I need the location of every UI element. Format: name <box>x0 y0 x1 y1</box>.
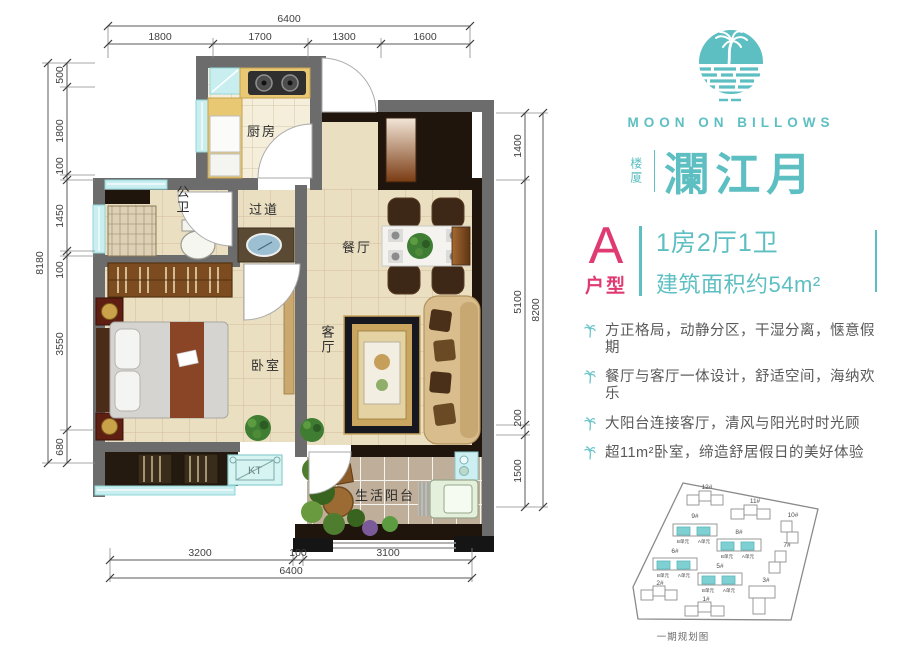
dim-right-2: 200 <box>512 409 524 427</box>
dim-left-0: 500 <box>54 66 66 84</box>
bed-runner <box>170 322 204 418</box>
brand-name-en: MOON ON BILLOWS <box>628 115 835 130</box>
siteplan-building: 11# <box>731 498 770 519</box>
dim-bottom-total: 6400 <box>279 565 303 577</box>
dim-left-6: 680 <box>54 438 66 456</box>
brand-name-row: 楼厦 瀾江月 <box>628 138 835 203</box>
siteplan-building-highlight: 5# B单元 A单元 <box>698 563 742 594</box>
label-kitchen: 厨房 <box>247 124 277 140</box>
siteplan-building: 7# <box>769 542 791 573</box>
sideboard <box>452 227 470 265</box>
siteplan-building-highlight: 8# B单元 A单元 <box>717 529 761 560</box>
svg-text:B单元: B单元 <box>657 572 670 579</box>
siteplan: 12# 11# 10# 9# B单元 A单元 <box>603 477 859 650</box>
dim-bottom-2: 3100 <box>376 547 400 559</box>
svg-text:8#: 8# <box>735 529 743 536</box>
dim-top-0: 1800 <box>148 31 172 43</box>
palm-bullet-icon <box>583 446 597 460</box>
siteplan-building: 12# <box>687 484 723 505</box>
unit-area: 建筑面积约54m² <box>656 267 821 299</box>
siteplan-boundary <box>633 483 818 620</box>
label-hallway: 过道 <box>249 203 279 218</box>
pillow <box>115 329 140 369</box>
dim-right-1: 5100 <box>512 290 524 314</box>
svg-text:3#: 3# <box>762 577 770 584</box>
entry-cabinet <box>386 118 416 182</box>
dim-right-total: 8200 <box>530 298 542 322</box>
dim-left-1: 1800 <box>54 119 66 143</box>
dim-top-total: 6400 <box>277 13 301 25</box>
shower <box>108 206 156 256</box>
dim-bottom-1: 100 <box>289 547 307 559</box>
dim-bottom-0: 3200 <box>188 547 212 559</box>
feature-item: 方正格局，动静分区，干湿分离，惬意假期 <box>583 323 879 356</box>
dim-left-4: 100 <box>54 261 66 279</box>
palm-bullet-icon <box>583 417 597 431</box>
svg-text:A单元: A单元 <box>742 553 755 560</box>
dim-right-0: 1400 <box>512 134 524 158</box>
brand-name-cn: 瀾江月 <box>664 138 817 203</box>
siteplan-building: 2# <box>641 580 677 600</box>
siteplan-caption: 一期规划图 <box>657 631 710 643</box>
dim-left-5: 3550 <box>54 332 66 356</box>
brand-logo-icon <box>695 28 767 106</box>
svg-text:10#: 10# <box>788 512 799 519</box>
unit-type-label: 户型 <box>585 271 627 298</box>
unit-divider <box>639 226 642 296</box>
dim-top-3: 1600 <box>413 31 437 43</box>
siteplan-building: 10# <box>781 512 799 543</box>
label-balcony: 生活阳台 <box>355 489 415 504</box>
feature-item: 餐厅与客厅一体设计，舒适空间，海纳欢乐 <box>583 369 879 402</box>
svg-text:9#: 9# <box>691 513 699 520</box>
unit-end-divider <box>875 230 877 292</box>
feature-text: 超11m²卧室，缔造舒居假日的美好体验 <box>605 445 864 462</box>
svg-text:12#: 12# <box>702 484 713 491</box>
label-living: 客厅 <box>319 324 335 355</box>
siteplan-building-highlight: 6# B单元 A单元 <box>653 548 697 579</box>
unit-summary: A 户型 1房2厅1卫 建筑面积约54m² <box>585 223 877 299</box>
feature-list: 方正格局，动静分区，干湿分离，惬意假期 餐厅与客厅一体设计，舒适空间，海纳欢乐 … <box>583 323 879 475</box>
brand-prefix: 楼厦 <box>628 157 645 185</box>
palm-bullet-icon <box>583 370 597 384</box>
label-bath: 公卫 <box>174 185 190 215</box>
label-bedroom: 卧室 <box>251 358 281 374</box>
feature-text: 餐厅与客厅一体设计，舒适空间，海纳欢乐 <box>605 369 879 402</box>
svg-text:A单元: A单元 <box>723 587 736 594</box>
dim-right-3: 1500 <box>512 459 524 483</box>
svg-text:11#: 11# <box>750 498 761 505</box>
coffee-table <box>364 342 400 404</box>
siteplan-building: 3# <box>749 577 775 614</box>
pillow <box>115 371 140 411</box>
siteplan-building-highlight: 9# B单元 A单元 <box>673 513 717 545</box>
svg-text:B单元: B单元 <box>677 538 690 545</box>
svg-text:B单元: B单元 <box>721 553 734 560</box>
feature-item: 大阳台连接客厅，清风与阳光时时光顾 <box>583 416 879 433</box>
dim-top-1: 1700 <box>248 31 272 43</box>
svg-text:A单元: A单元 <box>698 538 711 545</box>
tv-cabinet <box>284 290 294 394</box>
hallway-basin <box>238 228 294 262</box>
feature-text: 方正格局，动静分区，干湿分离，惬意假期 <box>605 323 879 356</box>
palm-bullet-icon <box>583 324 597 338</box>
feature-item: 超11m²卧室，缔造舒居假日的美好体验 <box>583 445 879 462</box>
svg-text:A单元: A单元 <box>678 572 691 579</box>
siteplan-building: 1# <box>685 596 724 616</box>
unit-type-block: A 户型 <box>585 224 627 298</box>
dim-left-total: 8180 <box>34 251 46 275</box>
bed-headboard <box>96 328 110 412</box>
dim-left-3: 1450 <box>54 204 66 228</box>
floorplan: KT 厨房 公卫 过道 餐厅 卧室 客厅 生活阳台 6400 1800 1700… <box>0 0 600 600</box>
svg-text:7#: 7# <box>783 542 791 549</box>
entry-door <box>322 58 376 112</box>
fridge <box>210 116 240 152</box>
svg-text:5#: 5# <box>716 563 724 570</box>
ac-platform: KT <box>228 455 282 485</box>
dim-left-2: 100 <box>54 157 66 175</box>
unit-specs: 1房2厅1卫 建筑面积约54m² <box>656 223 821 299</box>
marketing-panel: MOON ON BILLOWS 楼厦 瀾江月 A 户型 1房2厅1卫 建筑面积约… <box>575 28 887 650</box>
svg-text:B单元: B单元 <box>702 587 715 594</box>
feature-text: 大阳台连接客厅，清风与阳光时时光顾 <box>605 416 860 433</box>
balcony-sink <box>455 452 478 480</box>
dim-top-2: 1300 <box>332 31 356 43</box>
label-dining: 餐厅 <box>342 240 372 256</box>
unit-layout: 1房2厅1卫 <box>656 223 821 259</box>
ac-label: KT <box>248 465 262 477</box>
unit-letter: A <box>585 224 627 268</box>
brand-divider <box>654 150 656 192</box>
svg-text:6#: 6# <box>671 548 679 555</box>
